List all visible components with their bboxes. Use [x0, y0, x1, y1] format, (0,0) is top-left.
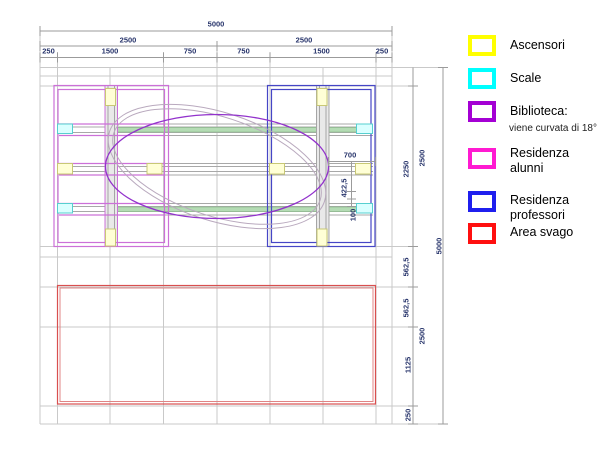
dim-top-seg-2: 1500: [102, 47, 119, 56]
dim-top-seg-3: 750: [184, 47, 197, 56]
legend-sublabel-biblioteca: viene curvata di 18°: [509, 123, 597, 134]
dim-right-total: 5000: [434, 238, 443, 255]
legend-label-area-svago: Area svago: [510, 225, 596, 240]
corridor-right: [317, 86, 330, 247]
dim-interior-100: 100: [348, 208, 357, 221]
legend-label-residenza-professori: Residenza professori: [510, 193, 580, 223]
dim-top-seg-4: 750: [237, 47, 250, 56]
dim-top-half-2: 2500: [296, 35, 313, 44]
legend-swatch-residenza-professori: [468, 191, 496, 212]
legend-swatch-ascensori: [468, 35, 496, 56]
dim-right-seg-1: 2250: [402, 161, 411, 178]
dim-top-total: 5000: [208, 20, 225, 29]
dim-top-seg-6: 250: [376, 47, 389, 56]
dim-interior-700: 700: [344, 150, 357, 159]
dim-right-seg-5: 250: [404, 409, 413, 422]
legend-swatch-biblioteca: [468, 101, 496, 122]
dim-right-half-1: 2500: [417, 150, 426, 167]
dim-top-half-1: 2500: [120, 35, 137, 44]
dim-right-seg-3: 562,5: [402, 298, 411, 317]
legend-label-ascensori: Ascensori: [510, 38, 596, 53]
dim-interior-422-5: 422,5: [340, 178, 349, 197]
dim-right-seg-4: 1125: [404, 356, 413, 372]
legend-label-biblioteca: Biblioteca:: [510, 104, 596, 119]
legend-swatch-area-svago: [468, 223, 496, 244]
legend-swatch-scale: [468, 68, 496, 89]
cad-floor-plan: 5000 2500 2500 250 1500 750 750 1500 250…: [0, 0, 600, 450]
legend-label-residenza-alunni: Residenza alunni: [510, 146, 580, 176]
legend-swatch-residenza-alunni: [468, 148, 496, 169]
dim-right-seg-2: 562,5: [402, 257, 411, 276]
legend-label-scale: Scale: [510, 71, 596, 86]
dim-top-seg-1: 250: [42, 47, 55, 56]
dim-right-half-2: 2500: [417, 328, 426, 345]
corridor-left: [105, 86, 118, 247]
dim-top-seg-5: 1500: [313, 47, 330, 56]
